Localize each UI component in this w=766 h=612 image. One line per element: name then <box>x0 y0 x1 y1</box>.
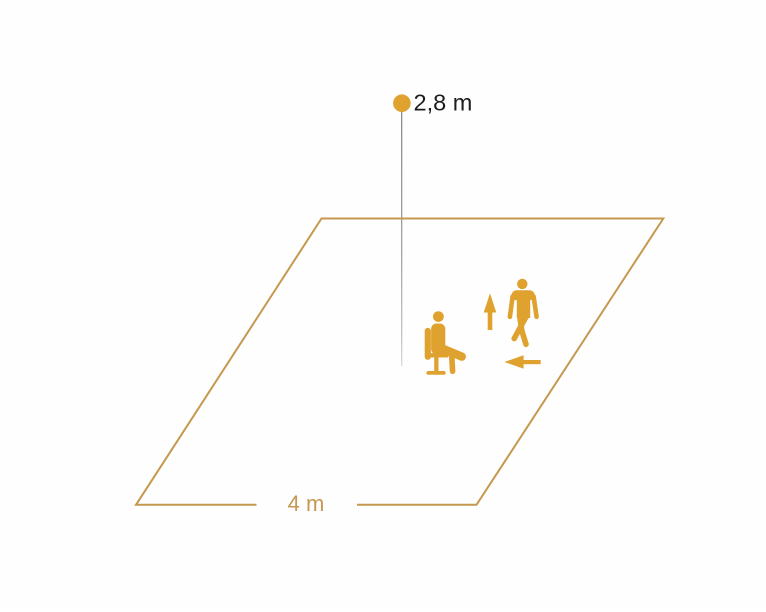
svg-text:2,8 m: 2,8 m <box>414 89 473 115</box>
svg-text:4 m: 4 m <box>288 491 325 516</box>
